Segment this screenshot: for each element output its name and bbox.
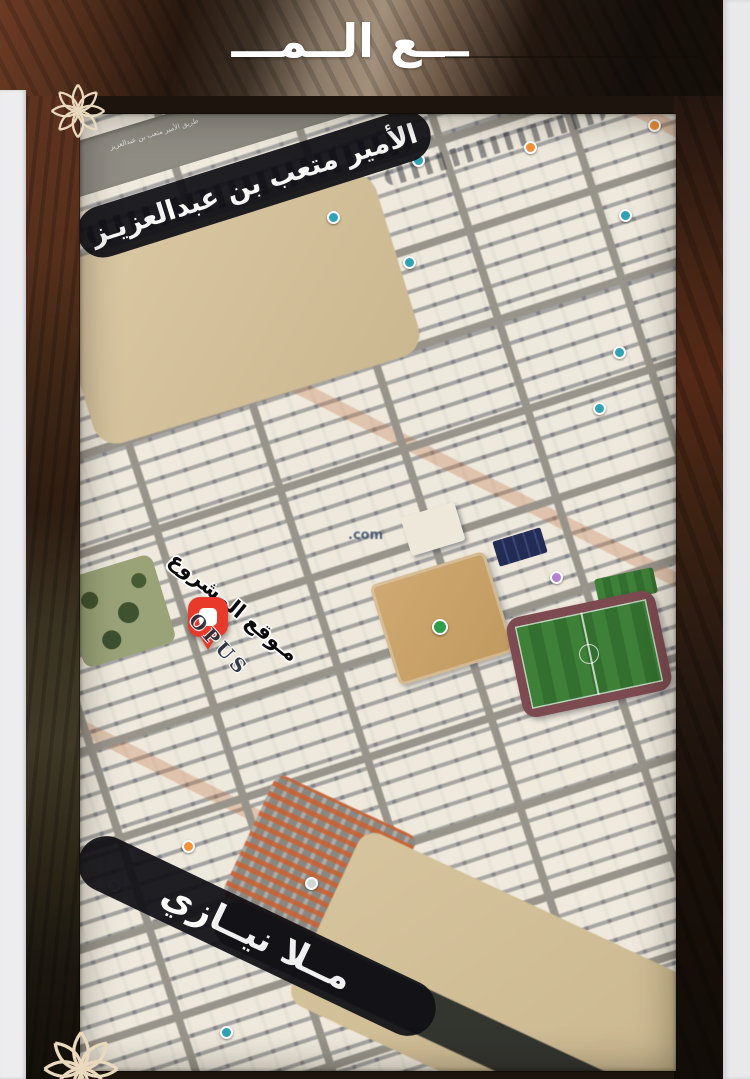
poi-dot-teal — [613, 346, 626, 359]
poi-dot-teal — [593, 402, 606, 415]
flower-petals — [44, 1032, 117, 1079]
left-light-panel — [0, 90, 26, 1079]
flower-logo-top — [47, 80, 109, 142]
satellite-map: طريق الأمير متعب بن عبدالعزيز الأمير متع… — [80, 114, 676, 1071]
poi-dot-teal — [220, 1026, 233, 1039]
poi-dot-green — [432, 619, 448, 635]
poi-dot-orange — [524, 141, 537, 154]
poi-dot-teal — [327, 211, 340, 224]
flower-logo-bottom — [38, 1026, 124, 1079]
left-photo-strip — [26, 96, 82, 1079]
left-photo-grain — [26, 96, 82, 1079]
right-photo-grain — [674, 96, 723, 1079]
poi-dot-orange — [648, 119, 661, 132]
poi-dot-teal — [403, 256, 416, 269]
poi-dot-grey — [305, 877, 318, 890]
poi-dot-teal — [619, 209, 632, 222]
poi-dot-orange — [182, 840, 195, 853]
poster: ـــع الــمـــ طريق الأمير متعب بن عبدالع… — [0, 0, 750, 1079]
soccer-center-circle — [577, 642, 601, 666]
right-light-panel — [723, 0, 750, 1079]
website-watermark: .com — [348, 528, 383, 543]
flower-petals — [52, 85, 105, 138]
soccer-field-turf — [515, 599, 664, 709]
decorative-line — [445, 56, 700, 58]
poi-dot-purple — [550, 571, 563, 584]
headline-fragment-text: ـــع الــمـــ — [170, 14, 530, 68]
right-photo-strip — [674, 96, 723, 1079]
